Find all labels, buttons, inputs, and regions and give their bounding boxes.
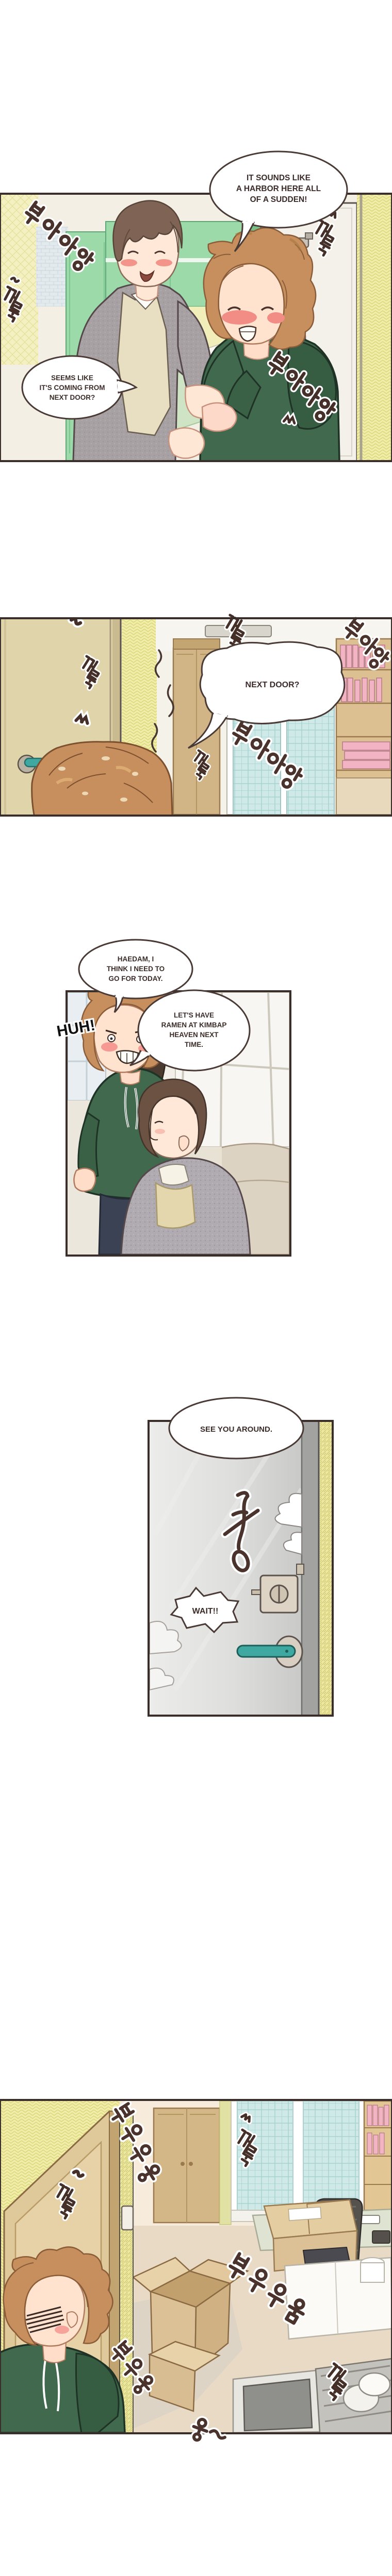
svg-text:LET'S HAVE: LET'S HAVE	[174, 1011, 214, 1019]
svg-text:SEEMS LIKE: SEEMS LIKE	[51, 374, 93, 382]
svg-text:IT SOUNDS LIKE: IT SOUNDS LIKE	[247, 174, 311, 182]
svg-text:THINK I NEED TO: THINK I NEED TO	[107, 965, 165, 973]
svg-text:RAMEN AT KIMBAP: RAMEN AT KIMBAP	[161, 1021, 227, 1029]
svg-text:GO FOR TODAY.: GO FOR TODAY.	[108, 975, 162, 982]
svg-text:HAEDAM, I: HAEDAM, I	[118, 955, 154, 963]
svg-text:SEE YOU AROUND.: SEE YOU AROUND.	[200, 1425, 272, 1434]
svg-text:IT'S COMING FROM: IT'S COMING FROM	[40, 384, 105, 392]
svg-text:TIME.: TIME.	[185, 1041, 203, 1048]
svg-text:NEXT DOOR?: NEXT DOOR?	[246, 681, 300, 689]
svg-text:HEAVEN NEXT: HEAVEN NEXT	[169, 1031, 219, 1039]
svg-text:WAIT!!: WAIT!!	[192, 1607, 219, 1616]
svg-text:A HARBOR HERE ALL: A HARBOR HERE ALL	[236, 184, 321, 193]
svg-text:NEXT DOOR?: NEXT DOOR?	[50, 394, 95, 401]
svg-text:OF A SUDDEN!: OF A SUDDEN!	[250, 195, 307, 204]
